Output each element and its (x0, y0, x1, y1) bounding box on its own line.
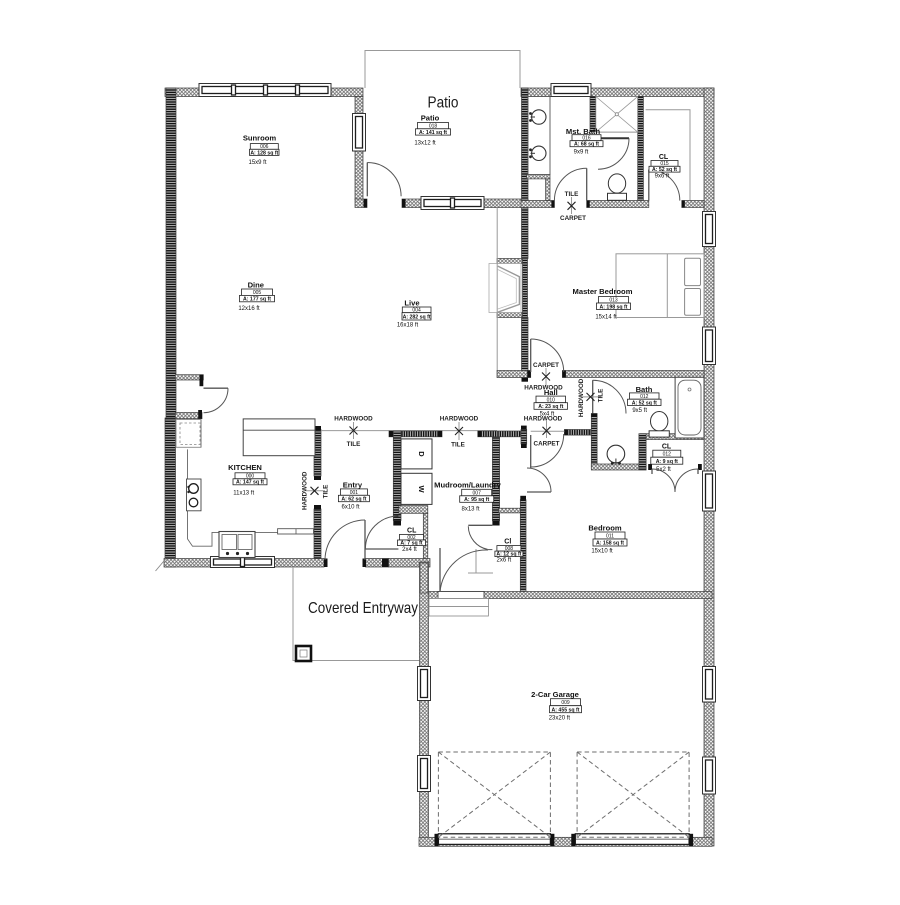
svg-text:CARPET: CARPET (560, 215, 586, 222)
svg-text:6x10 ft: 6x10 ft (341, 505, 359, 511)
svg-text:A: 62 sq ft: A: 62 sq ft (341, 496, 366, 502)
svg-text:Bedroom: Bedroom (588, 524, 622, 533)
svg-text:CARPET: CARPET (534, 441, 560, 448)
svg-text:TILE: TILE (347, 441, 361, 448)
svg-text:TILE: TILE (451, 442, 465, 449)
svg-text:Dine: Dine (248, 281, 264, 290)
svg-text:A: 282 sq ft: A: 282 sq ft (403, 315, 431, 321)
svg-text:5x2 ft: 5x2 ft (656, 467, 671, 473)
svg-text:2x4 ft: 2x4 ft (402, 547, 417, 553)
svg-text:A: 95 sq ft: A: 95 sq ft (464, 497, 489, 503)
svg-text:CARPET: CARPET (533, 362, 559, 369)
svg-text:8x13 ft: 8x13 ft (461, 507, 479, 513)
svg-text:A: 198 sq ft: A: 198 sq ft (600, 304, 628, 310)
svg-text:W: W (417, 485, 426, 493)
svg-text:15x10 ft: 15x10 ft (591, 548, 613, 554)
svg-text:HARDWOOD: HARDWOOD (524, 384, 563, 391)
svg-text:15x14 ft: 15x14 ft (595, 315, 617, 321)
svg-text:Entry: Entry (343, 481, 363, 490)
svg-text:D: D (417, 451, 426, 457)
svg-text:CL: CL (407, 528, 417, 535)
svg-text:Cl: Cl (504, 539, 511, 546)
svg-text:A: 455 sq ft: A: 455 sq ft (552, 707, 580, 713)
svg-text:A: 177 sq ft: A: 177 sq ft (243, 297, 271, 303)
svg-text:2-Car Garage: 2-Car Garage (531, 690, 579, 699)
svg-text:9x6 ft: 9x6 ft (655, 174, 670, 180)
svg-text:HARDWOOD: HARDWOOD (524, 416, 563, 423)
svg-text:Patio: Patio (421, 114, 440, 123)
svg-text:A: 9 sq ft: A: 9 sq ft (656, 459, 678, 465)
svg-text:15x9 ft: 15x9 ft (248, 160, 266, 166)
svg-text:9x5 ft: 9x5 ft (632, 408, 647, 414)
svg-text:13x12 ft: 13x12 ft (414, 141, 436, 147)
svg-text:Patio: Patio (428, 95, 459, 112)
svg-text:HARDWOOD: HARDWOOD (334, 416, 373, 423)
svg-text:TILE: TILE (565, 191, 579, 198)
svg-text:009: 009 (561, 700, 570, 706)
svg-text:16x18 ft: 16x18 ft (397, 323, 419, 329)
svg-text:TILE: TILE (598, 389, 605, 403)
svg-text:Live: Live (404, 299, 419, 308)
svg-text:Covered Entryway: Covered Entryway (308, 600, 418, 617)
svg-text:A: 7 sq ft: A: 7 sq ft (400, 541, 422, 547)
svg-text:HARDWOOD: HARDWOOD (440, 416, 479, 423)
svg-text:A: 128 sq ft: A: 128 sq ft (250, 150, 278, 156)
svg-text:9x9 ft: 9x9 ft (574, 150, 589, 156)
svg-text:A: 158 sq ft: A: 158 sq ft (596, 541, 624, 547)
svg-text:A: 147 sq ft: A: 147 sq ft (236, 480, 264, 486)
svg-text:Master Bedroom: Master Bedroom (573, 287, 633, 296)
svg-text:011: 011 (606, 534, 614, 540)
svg-text:CL: CL (662, 444, 672, 451)
svg-text:Sunroom: Sunroom (243, 134, 277, 143)
svg-text:Mudroom/Laundry: Mudroom/Laundry (434, 480, 501, 489)
svg-text:TILE: TILE (323, 485, 330, 499)
svg-text:A: 141 sq ft: A: 141 sq ft (419, 130, 447, 136)
svg-text:11x13 ft: 11x13 ft (233, 491, 254, 497)
svg-text:KITCHEN: KITCHEN (228, 463, 262, 472)
svg-text:A: 68 sq ft: A: 68 sq ft (574, 142, 599, 148)
svg-text:23x20 ft: 23x20 ft (549, 715, 571, 721)
svg-text:A: 52 sq ft: A: 52 sq ft (632, 400, 657, 406)
svg-text:12x16 ft: 12x16 ft (238, 306, 260, 312)
svg-text:CL: CL (659, 154, 669, 161)
svg-text:HARDWOOD: HARDWOOD (578, 378, 585, 417)
svg-text:A: 23 sq ft: A: 23 sq ft (538, 404, 563, 410)
svg-text:A: 52 sq ft: A: 52 sq ft (652, 167, 677, 173)
svg-text:2x6 ft: 2x6 ft (497, 558, 512, 564)
